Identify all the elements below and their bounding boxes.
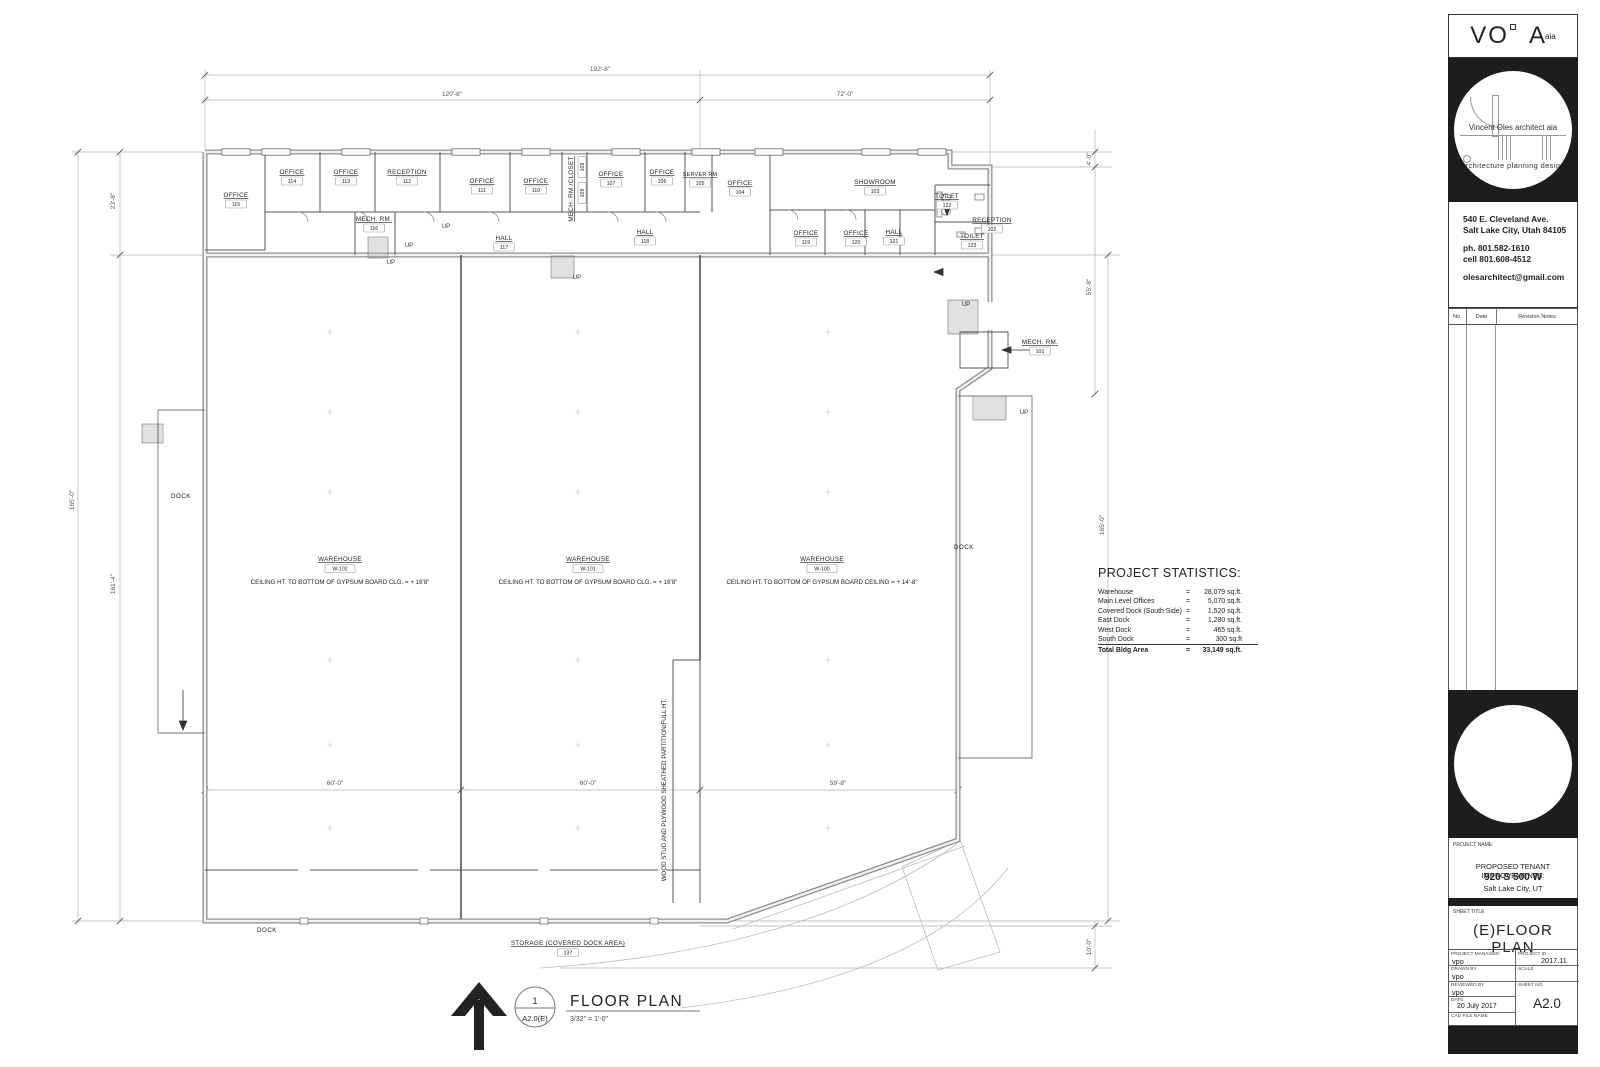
room-label-114: OFFICE114 [280, 169, 305, 185]
dock-label: DOCK [954, 544, 974, 551]
svg-text:W-100: W-100 [814, 567, 829, 573]
room-label-113: OFFICE113 [334, 169, 359, 185]
up-label: UP [442, 224, 450, 230]
dimension-label: 161'-4" [110, 573, 117, 594]
svg-text:RECEPTION: RECEPTION [387, 169, 427, 176]
svg-text:OFFICE: OFFICE [844, 230, 869, 237]
svg-text:101: 101 [1036, 349, 1045, 355]
dimension-label: 55'-8" [1086, 278, 1093, 295]
logo-seal: Vincent Oles architect aia architecture … [1448, 58, 1578, 202]
room-label-110: OFFICE110 [524, 178, 549, 194]
svg-text:55'-8": 55'-8" [1086, 278, 1093, 295]
svg-text:UP: UP [1020, 410, 1028, 416]
phone: ph. 801.582-1610 [1463, 243, 1577, 254]
room-label-112: RECEPTION112 [387, 169, 427, 185]
svg-text:113: 113 [342, 179, 350, 185]
project-statistics: PROJECT STATISTICS: Warehouse=28,079 sq.… [1098, 566, 1258, 656]
project-statistics-rows: Warehouse=28,079 sq.ft.Main Level Office… [1098, 588, 1258, 656]
up-label: UP [573, 275, 581, 281]
svg-text:STORAGE (COVERED DOCK AREA): STORAGE (COVERED DOCK AREA) [511, 940, 625, 947]
room-label-115: OFFICE115 [224, 192, 249, 208]
up-label: UP [962, 302, 970, 308]
partition-note: WOOD STUD AND PLYWOOD SHEATHED PARTITION… [661, 698, 668, 881]
svg-text:121: 121 [890, 239, 899, 245]
dimension-label: 60'-0" [327, 780, 344, 787]
dimension-label: 4'-0" [1086, 152, 1093, 166]
room-label-103: SHOWROOM103 [854, 179, 896, 195]
svg-text:115: 115 [232, 202, 240, 208]
svg-text:MECH. RM./CLOSET: MECH. RM./CLOSET [568, 156, 575, 221]
project-manager-value: vpo [1452, 957, 1464, 966]
room-label-116: MECH. RM.116 [356, 216, 392, 232]
stats-row: Warehouse=28,079 sq.ft. [1098, 588, 1258, 597]
plan-title: 1 A2.0(E) FLOOR PLAN 3/32" = 1'-0" [515, 987, 700, 1027]
svg-text:119: 119 [802, 240, 810, 246]
seal-tagline: architecture planning design [1454, 161, 1572, 170]
revision-col-date: Date [1467, 309, 1497, 324]
svg-text:117: 117 [500, 245, 508, 251]
dimension-label: 23'-8" [110, 192, 117, 209]
plan-title-scale: 3/32" = 1'-0" [570, 1016, 609, 1023]
wall-openings [222, 149, 946, 924]
svg-text:108: 108 [580, 163, 586, 172]
svg-text:OFFICE: OFFICE [599, 171, 624, 178]
svg-text:60'-0": 60'-0" [580, 780, 597, 787]
address-line2: Salt Lake City, Utah 84105 [1463, 225, 1577, 236]
room-label-118: HALL118 [635, 229, 656, 245]
logo-seal-circle: Vincent Oles architect aia architecture … [1454, 71, 1572, 189]
svg-text:161'-4": 161'-4" [110, 573, 117, 594]
svg-text:UP: UP [962, 302, 970, 308]
room-label-122: TOILET122 [935, 193, 959, 209]
title-block-fields: PROJECT MANAGER: vpo PROJECT ID 2017.11 … [1448, 949, 1578, 1026]
dimension-label: 59'-8" [830, 780, 847, 787]
svg-text:HALL: HALL [637, 229, 654, 236]
svg-text:DOCK: DOCK [257, 927, 277, 934]
sheet-title-label: SHEET TITLE [1453, 909, 1485, 915]
revision-table: No. Date Revision Notes [1448, 308, 1578, 690]
room-label-117: HALL117 [494, 235, 515, 251]
dimension-label: 165'-0" [1099, 514, 1106, 535]
up-label: UP [1020, 410, 1028, 416]
svg-text:112: 112 [403, 179, 411, 185]
svg-text:110: 110 [532, 188, 540, 194]
svg-text:192'-8": 192'-8" [590, 66, 611, 73]
stairs [142, 237, 1006, 443]
revision-table-header: No. Date Revision Notes [1449, 309, 1577, 325]
revision-col-no: No. [1449, 309, 1467, 324]
svg-text:72'-0": 72'-0" [837, 91, 854, 98]
svg-text:106: 106 [658, 179, 667, 185]
svg-text:104: 104 [736, 190, 745, 196]
warehouse-label-W-101: WAREHOUSEW-101CEILING HT. TO BOTTOM OF G… [499, 556, 678, 586]
sheet-title-section: SHEET TITLE (E)FLOOR PLAN [1448, 906, 1578, 949]
date-value: 20 July 2017 [1457, 1003, 1497, 1010]
svg-text:137: 137 [564, 951, 573, 957]
svg-text:HALL: HALL [886, 229, 903, 236]
svg-text:OFFICE: OFFICE [334, 169, 359, 176]
exterior-walls [205, 152, 990, 921]
stats-row: West Dock=465 sq.ft. [1098, 626, 1258, 635]
plan-title-ref: A2.0(E) [522, 1014, 548, 1023]
svg-text:114: 114 [288, 179, 296, 185]
svg-text:SHOWROOM: SHOWROOM [854, 179, 896, 186]
logo-aia: aia [1545, 32, 1556, 41]
sketch-column-icon [1498, 136, 1514, 160]
plan-title-number: 1 [532, 996, 537, 1006]
warehouse-label-W-100: WAREHOUSEW-100CEILING HT. TO BOTTOM OF G… [726, 556, 917, 586]
svg-text:OFFICE: OFFICE [224, 192, 249, 199]
up-label: UP [387, 260, 395, 266]
svg-text:W-102: W-102 [332, 567, 347, 573]
revision-col-notes: Revision Notes [1497, 309, 1577, 324]
room-label-111: OFFICE111 [470, 178, 495, 194]
divider-bar [1448, 898, 1578, 906]
architect-address: 540 E. Cleveland Ave. Salt Lake City, Ut… [1448, 202, 1578, 308]
room-label-104: OFFICE104 [728, 180, 753, 196]
svg-text:W-101: W-101 [580, 567, 595, 573]
dimension-label: 60'-0" [580, 780, 597, 787]
drive-path-arcs [540, 840, 1008, 1008]
logo-a: A [1529, 22, 1545, 50]
revision-table-body [1449, 325, 1577, 691]
scale-label: SCALE [1518, 967, 1534, 972]
dock-label: DOCK [171, 493, 191, 500]
project-name-section: PROJECT NAME: PROPOSED TENANT IMPROVEMEN… [1448, 838, 1578, 898]
storage-label-137: STORAGE (COVERED DOCK AREA)137 [511, 940, 625, 957]
svg-text:OFFICE: OFFICE [280, 169, 305, 176]
svg-text:4'-0": 4'-0" [1086, 152, 1093, 166]
reviewed-by-value: vpo [1452, 988, 1464, 997]
svg-text:CEILING HT. TO BOTTOM OF GYPSU: CEILING HT. TO BOTTOM OF GYPSUM BOARD CE… [726, 579, 917, 586]
svg-text:116: 116 [370, 226, 378, 232]
dimension-label: 192'-8" [590, 66, 611, 73]
svg-text:OFFICE: OFFICE [524, 178, 549, 185]
svg-text:CEILING HT. TO BOTTOM OF GYPSU: CEILING HT. TO BOTTOM OF GYPSUM BOARD CL… [499, 579, 678, 586]
interior-walls [205, 152, 1008, 919]
svg-text:WOOD STUD AND PLYWOOD SHEATHED: WOOD STUD AND PLYWOOD SHEATHED PARTITION… [661, 698, 668, 881]
svg-text:WAREHOUSE: WAREHOUSE [318, 556, 362, 563]
svg-text:UP: UP [387, 260, 395, 266]
svg-text:WAREHOUSE: WAREHOUSE [800, 556, 844, 563]
svg-text:60'-0": 60'-0" [327, 780, 344, 787]
stats-row: South Dock=300 sq.ft [1098, 635, 1258, 645]
architect-logo: VOAaia [1448, 14, 1578, 58]
svg-text:118: 118 [641, 239, 649, 245]
svg-text:OFFICE: OFFICE [794, 230, 819, 237]
svg-text:OFFICE: OFFICE [728, 180, 753, 187]
svg-text:DOCK: DOCK [171, 493, 191, 500]
stamp-seal [1448, 690, 1578, 838]
plan-title-name: FLOOR PLAN [570, 993, 683, 1010]
drawn-by-value: vpo [1452, 972, 1464, 981]
up-label: UP [405, 243, 413, 249]
svg-text:MECH. RM.: MECH. RM. [356, 216, 392, 223]
project-name-line3: Salt Lake City, UT [1449, 884, 1577, 893]
leader-arrows [179, 207, 1030, 730]
svg-text:WAREHOUSE: WAREHOUSE [566, 556, 610, 563]
project-name-label: PROJECT NAME: [1453, 842, 1493, 848]
footer-bar [1448, 1026, 1578, 1054]
dimension-label: 120'-8" [442, 91, 463, 98]
dock-label: DOCK [257, 927, 277, 934]
svg-text:DOCK: DOCK [954, 544, 974, 551]
svg-text:103: 103 [871, 189, 880, 195]
title-block: VOAaia Vincent Oles architect aia archit… [1448, 14, 1578, 1054]
stamp-seal-circle [1454, 705, 1572, 823]
project-id-value: 2017.11 [1541, 956, 1567, 965]
room-label-101: MECH. RM.101 [1022, 339, 1058, 355]
svg-text:TOILET: TOILET [960, 233, 984, 240]
svg-text:120: 120 [852, 240, 861, 246]
room-label-123: TOILET123 [960, 233, 984, 249]
svg-text:OFFICE: OFFICE [470, 178, 495, 185]
svg-text:107: 107 [607, 181, 616, 187]
project-statistics-title: PROJECT STATISTICS: [1098, 566, 1258, 580]
sheet-no-label: SHEET NO. [1518, 983, 1544, 988]
stats-row: East Dock=1,280 sq.ft. [1098, 616, 1258, 625]
stats-row: Total Bldg Area=33,149 sq.ft. [1098, 646, 1258, 655]
address-line1: 540 E. Cleveland Ave. [1463, 214, 1577, 225]
room-label-107: OFFICE107 [599, 171, 624, 187]
floor-plan-drawing: 1 A2.0(E) FLOOR PLAN 3/32" = 1'-0" OFFIC… [0, 0, 1448, 1067]
north-arrow-icon [451, 982, 507, 1050]
stats-row: Main Level Offices=5,070 sq.ft. [1098, 597, 1258, 606]
svg-text:HALL: HALL [496, 235, 513, 242]
svg-text:UP: UP [442, 224, 450, 230]
svg-text:120'-8": 120'-8" [442, 91, 463, 98]
svg-text:TOILET: TOILET [935, 193, 959, 200]
room-label-120: OFFICE120 [844, 230, 869, 246]
dimension-label: 72'-0" [837, 91, 854, 98]
svg-text:123: 123 [968, 243, 977, 249]
dimension-label: 165'-0" [69, 489, 76, 510]
svg-text:122: 122 [943, 203, 952, 209]
sketch-column-icon [1542, 136, 1553, 160]
room-label-106: OFFICE106 [650, 169, 675, 185]
logo-vo: VO [1470, 22, 1509, 50]
svg-text:23'-8": 23'-8" [110, 192, 117, 209]
cell: cell 801.608-4512 [1463, 254, 1577, 265]
svg-text:OFFICE: OFFICE [650, 169, 675, 176]
svg-text:UP: UP [405, 243, 413, 249]
dock-outlines [158, 396, 1032, 758]
svg-text:10'-0": 10'-0" [1086, 938, 1093, 955]
cad-file-label: CAD FILE NAME [1451, 1014, 1488, 1019]
project-name-line2: 920 S 500 W [1449, 872, 1577, 883]
logo-square-icon [1510, 24, 1516, 30]
room-label-121: HALL121 [884, 229, 905, 245]
svg-text:MECH. RM.: MECH. RM. [1022, 339, 1058, 346]
seal-architect-name: Vincent Oles architect aia [1454, 123, 1572, 132]
svg-text:102: 102 [988, 227, 997, 233]
svg-text:165'-0": 165'-0" [1099, 514, 1106, 535]
svg-text:105: 105 [696, 181, 705, 187]
svg-text:CEILING HT. TO BOTTOM OF GYPSU: CEILING HT. TO BOTTOM OF GYPSUM BOARD CL… [251, 579, 430, 586]
warehouse-label-W-102: WAREHOUSEW-102CEILING HT. TO BOTTOM OF G… [251, 556, 430, 586]
svg-text:59'-8": 59'-8" [830, 780, 847, 787]
svg-text:UP: UP [573, 275, 581, 281]
email: olesarchitect@gmail.com [1463, 272, 1577, 283]
stats-row: Covered Dock (South Side)=1,520 sq.ft. [1098, 607, 1258, 616]
svg-text:SERVER RM: SERVER RM [683, 172, 718, 178]
svg-text:165'-0": 165'-0" [69, 489, 76, 510]
svg-text:RECEPTION: RECEPTION [972, 217, 1012, 224]
room-label-119: OFFICE119 [794, 230, 819, 246]
svg-text:111: 111 [478, 188, 486, 194]
svg-text:109: 109 [580, 189, 586, 198]
sheet-number: A2.0 [1515, 996, 1579, 1011]
dimension-label: 10'-0" [1086, 938, 1093, 955]
